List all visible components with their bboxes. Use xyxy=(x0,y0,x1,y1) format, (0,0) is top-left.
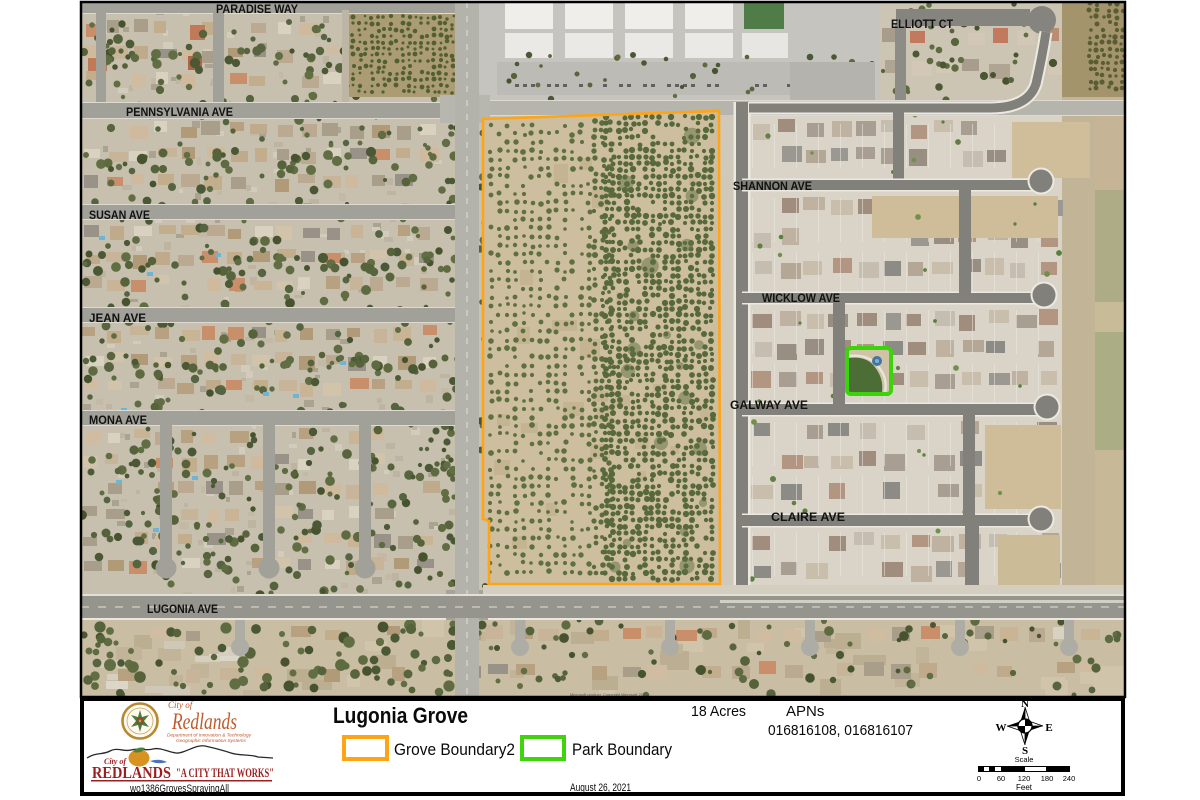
svg-text:180: 180 xyxy=(1041,774,1054,783)
svg-text:Department of Innovation & Tec: Department of Innovation & Technology xyxy=(167,733,252,739)
svg-text:Feet: Feet xyxy=(1016,783,1033,792)
svg-text:PARADISE WAY: PARADISE WAY xyxy=(216,2,298,16)
svg-text:SUSAN AVE: SUSAN AVE xyxy=(89,208,150,222)
svg-text:Redlands: Redlands xyxy=(171,709,237,734)
svg-text:LUGONIA AVE: LUGONIA AVE xyxy=(147,602,218,616)
svg-text:Geographic Information Systems: Geographic Information Systems xyxy=(176,738,246,744)
svg-text:W: W xyxy=(996,722,1007,734)
svg-text:18 Acres: 18 Acres xyxy=(691,703,746,720)
svg-text:APNs: APNs xyxy=(786,703,824,720)
svg-text:Lugonia Grove: Lugonia Grove xyxy=(333,703,468,728)
svg-text:MONA AVE: MONA AVE xyxy=(89,413,147,427)
svg-text:0: 0 xyxy=(977,774,981,783)
svg-text:Park Boundary: Park Boundary xyxy=(572,740,672,759)
svg-text:wo1386GrovesSprayingAll: wo1386GrovesSprayingAll xyxy=(129,783,229,795)
svg-text:SHANNON AVE: SHANNON AVE xyxy=(733,181,812,193)
svg-text:ELLIOTT CT: ELLIOTT CT xyxy=(891,17,954,31)
svg-text:Scale: Scale xyxy=(1015,755,1034,764)
svg-text:August 26, 2021: August 26, 2021 xyxy=(570,782,631,794)
svg-text:JEAN AVE: JEAN AVE xyxy=(89,311,146,325)
svg-text:REDLANDS: REDLANDS xyxy=(92,763,171,782)
svg-text:240: 240 xyxy=(1063,774,1076,783)
svg-text:WICKLOW AVE: WICKLOW AVE xyxy=(762,293,840,305)
svg-text:CLAIRE AVE: CLAIRE AVE xyxy=(771,512,845,524)
svg-text:PENNSYLVANIA AVE: PENNSYLVANIA AVE xyxy=(126,105,233,119)
svg-text:60: 60 xyxy=(997,774,1005,783)
svg-text:GALWAY AVE: GALWAY AVE xyxy=(730,400,808,412)
svg-text:N: N xyxy=(1021,698,1029,710)
svg-text:"A CITY THAT WORKS": "A CITY THAT WORKS" xyxy=(176,765,274,780)
svg-text:Grove Boundary2: Grove Boundary2 xyxy=(394,740,515,759)
svg-text:E: E xyxy=(1045,722,1052,734)
svg-text:120: 120 xyxy=(1018,774,1031,783)
svg-text:016816108, 016816107: 016816108, 016816107 xyxy=(768,722,913,739)
